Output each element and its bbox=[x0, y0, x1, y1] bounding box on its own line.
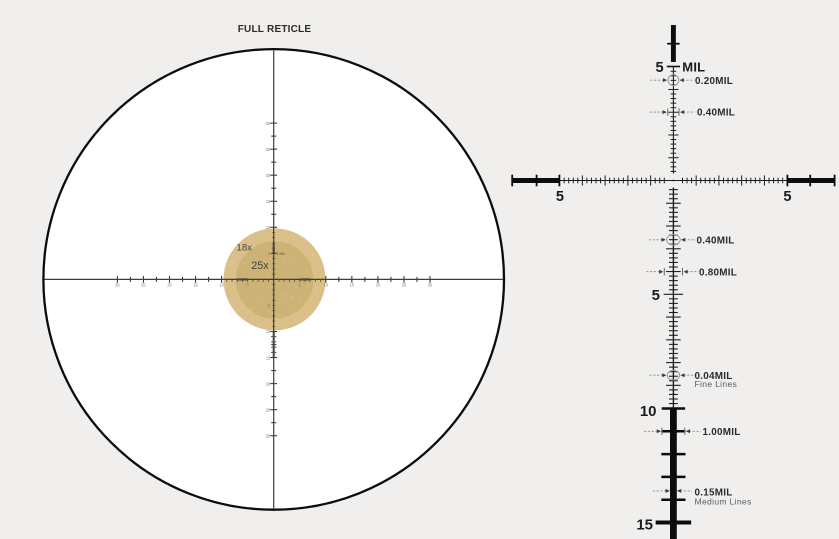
svg-text:Medium Lines: Medium Lines bbox=[695, 497, 752, 507]
svg-text:15: 15 bbox=[350, 283, 355, 288]
svg-text:10: 10 bbox=[324, 283, 329, 288]
svg-text:1.00MIL: 1.00MIL bbox=[703, 427, 741, 438]
svg-text:20: 20 bbox=[266, 173, 271, 178]
svg-text:15: 15 bbox=[266, 199, 271, 204]
svg-text:5: 5 bbox=[556, 189, 564, 205]
svg-text:20: 20 bbox=[376, 283, 381, 288]
svg-text:30: 30 bbox=[266, 433, 271, 438]
svg-text:MIL: MIL bbox=[682, 59, 705, 74]
svg-text:25: 25 bbox=[266, 407, 271, 412]
svg-text:FULL RETICLE: FULL RETICLE bbox=[238, 24, 312, 35]
svg-text:1 MIL: 1 MIL bbox=[277, 252, 286, 256]
svg-text:15: 15 bbox=[636, 517, 653, 534]
svg-text:15: 15 bbox=[193, 283, 198, 288]
svg-text:5: 5 bbox=[655, 60, 663, 76]
svg-text:30: 30 bbox=[428, 283, 433, 288]
svg-text:10: 10 bbox=[219, 283, 224, 288]
svg-text:25: 25 bbox=[141, 283, 146, 288]
svg-text:0.40MIL: 0.40MIL bbox=[697, 235, 735, 246]
svg-text:25: 25 bbox=[266, 147, 271, 152]
svg-text:25: 25 bbox=[402, 283, 407, 288]
svg-text:5: 5 bbox=[652, 287, 660, 304]
svg-text:5: 5 bbox=[783, 189, 791, 205]
svg-text:0.20MIL: 0.20MIL bbox=[695, 76, 733, 87]
svg-text:0.40MIL: 0.40MIL bbox=[697, 108, 735, 119]
svg-text:20: 20 bbox=[167, 283, 172, 288]
svg-text:30: 30 bbox=[266, 121, 271, 126]
svg-text:15: 15 bbox=[266, 355, 271, 360]
svg-text:0.80MIL: 0.80MIL bbox=[699, 267, 737, 278]
svg-text:Fine Lines: Fine Lines bbox=[695, 379, 738, 389]
svg-text:10: 10 bbox=[266, 225, 271, 230]
svg-text:25x: 25x bbox=[251, 260, 269, 272]
svg-text:10: 10 bbox=[266, 329, 271, 334]
svg-text:30: 30 bbox=[115, 283, 120, 288]
svg-text:10: 10 bbox=[640, 403, 657, 420]
svg-text:20: 20 bbox=[266, 381, 271, 386]
svg-text:18x: 18x bbox=[237, 242, 253, 253]
